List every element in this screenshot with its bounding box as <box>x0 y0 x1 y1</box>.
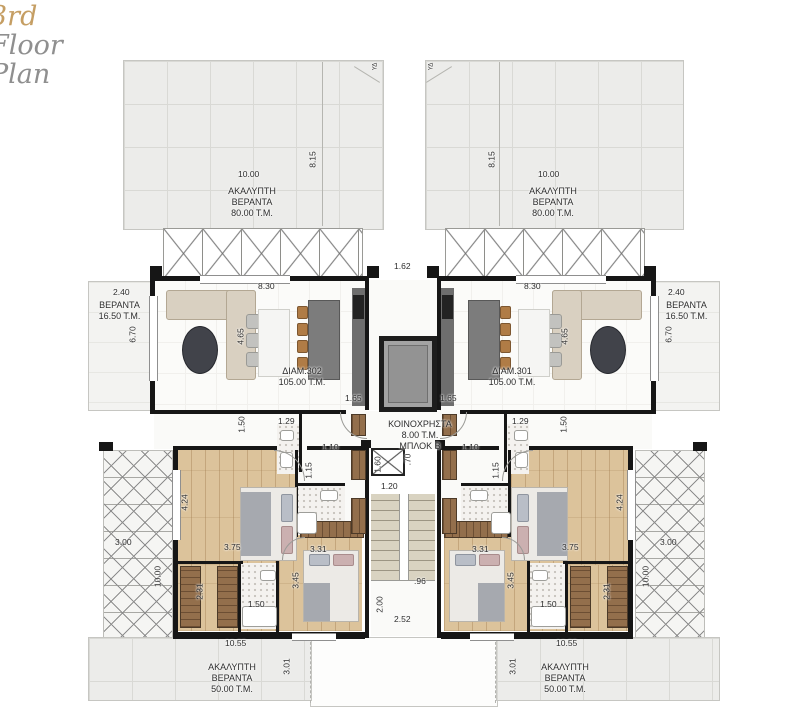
dim-sideveranda-width-right: 2.40 <box>668 288 685 297</box>
dim-entry-right: 1.50 <box>560 410 569 440</box>
bar-stool <box>297 323 308 336</box>
dim-corridor-left: 1.10 <box>322 443 339 452</box>
wall-segment <box>365 276 369 410</box>
dim-top-height-left: 8.15 <box>309 145 318 175</box>
blanket <box>241 492 271 556</box>
storage-cabinet <box>442 450 457 480</box>
wall-segment <box>150 410 346 414</box>
drain-mark-left: ΥΔ <box>371 63 380 71</box>
pergola-veranda-left <box>103 450 173 640</box>
wall-segment <box>173 632 365 639</box>
blanket <box>304 583 330 621</box>
label-line: 16.50 Τ.Μ. <box>655 311 718 322</box>
title-floor-number: 3rd <box>0 2 63 31</box>
bar-stool <box>297 340 308 353</box>
pillow <box>479 554 500 566</box>
label-line: ΒΕΡΑΝΤΑ <box>493 197 613 208</box>
dim-hall-right: 1.29 <box>512 417 529 426</box>
dim-living-depth-right: 4.65 <box>561 322 570 352</box>
label-line: 105.00 Τ.Μ. <box>252 377 352 388</box>
label-line: 105.00 Τ.Μ. <box>462 377 562 388</box>
dim-stair-width: 1.20 <box>381 482 398 491</box>
sliding-door-left <box>200 275 290 284</box>
dim-landing-total: 2.52 <box>394 615 411 624</box>
wardrobe-closet-left <box>217 566 238 628</box>
wall-segment <box>563 561 633 564</box>
boundary-dashed-right <box>495 637 497 703</box>
coffee-table-right <box>590 326 626 374</box>
dim-bath2-left: 1.50 <box>248 600 265 609</box>
label-line: ΑΚΑΛΥΠΤΗ <box>192 186 312 197</box>
bath1-sink-right <box>470 490 488 501</box>
label-line: ΑΚΑΛΥΠΤΗ <box>493 186 613 197</box>
label-line: 8.00 Τ.Μ. <box>368 430 472 441</box>
window-bed2-right <box>470 633 514 641</box>
dim-bed2-depth-left: 3.45 <box>292 566 301 596</box>
dim-sideveranda-width-left: 2.40 <box>113 288 130 297</box>
label-line: 16.50 Τ.Μ. <box>88 311 151 322</box>
wall-segment <box>437 446 441 638</box>
shower-right <box>491 512 511 534</box>
wardrobe-closet-right <box>570 566 591 628</box>
pillow <box>517 494 529 522</box>
wall-corner <box>693 442 707 451</box>
label-line: ΜΠΛΟΚ Β <box>368 441 472 452</box>
wc-sink-right <box>514 430 528 441</box>
bar-stool <box>500 323 511 336</box>
dim-master-width-left: 3.75 <box>224 543 241 552</box>
label-line: ΒΕΡΑΝΤΑ <box>505 673 625 684</box>
boundary-dashed-left <box>310 637 312 703</box>
bed-2-right <box>449 550 505 622</box>
side-veranda-label-right: ΒΕΡΑΝΤΑ 16.50 Τ.Μ. <box>655 300 718 322</box>
dim-entry-left: 1.50 <box>238 410 247 440</box>
drain-mark-right: ΥΔ <box>427 63 436 71</box>
dim-bed2-width-left: 3.31 <box>310 545 327 554</box>
label-line: 50.00 Τ.Μ. <box>172 684 292 695</box>
wc-sink-left <box>280 430 294 441</box>
dim-closet-right: 2.31 <box>603 577 612 607</box>
dim-top-width-left: 10.00 <box>238 170 259 179</box>
wall-segment <box>295 483 345 486</box>
dim-side-height-right: 10.00 <box>642 562 651 592</box>
pillow <box>333 554 354 566</box>
wall-segment <box>173 446 277 450</box>
wall-segment <box>529 446 633 450</box>
dim-line-left <box>322 62 323 226</box>
dim-hall-left: 1.29 <box>278 417 295 426</box>
dim-core-gap: 1.62 <box>394 262 411 271</box>
wall-segment <box>460 410 656 414</box>
label-line: ΑΚΑΛΥΠΤΗ <box>505 662 625 673</box>
dim-living-depth-left: 4.65 <box>237 322 246 352</box>
label-line: 80.00 Τ.Μ. <box>493 208 613 219</box>
dim-kitchen-left: 1.65 <box>345 394 362 403</box>
window-bed2-left <box>292 633 336 641</box>
dim-master-depth-left: 4.24 <box>181 488 190 518</box>
bath2-sink-right <box>532 570 548 581</box>
common-area-label: ΚΟΙΝΟΧΡΗΣΤΑ 8.00 Τ.Μ. ΜΠΛΟΚ Β <box>368 419 472 452</box>
top-veranda-label-right: ΑΚΑΛΥΠΤΗ ΒΕΡΑΝΤΑ 80.00 Τ.Μ. <box>493 186 613 219</box>
coffee-table-left <box>182 326 218 374</box>
wall-corner <box>644 266 656 278</box>
wall-corner <box>150 266 162 278</box>
kitchen-sink-left <box>353 295 364 319</box>
bath1-sink-left <box>320 490 338 501</box>
side-veranda-label-left: ΒΕΡΑΝΤΑ 16.50 Τ.Μ. <box>88 300 151 322</box>
dim-bed2-depth-right: 3.45 <box>507 566 516 596</box>
shower-left <box>297 512 317 534</box>
label-line: ΚΟΙΝΟΧΡΗΣΤΑ <box>368 419 472 430</box>
dim-bed2-width-right: 3.31 <box>472 545 489 554</box>
label-line: ΔΙΑΜ.302 <box>252 366 352 377</box>
bath2-sink-left <box>260 570 276 581</box>
wall-corner <box>99 442 113 451</box>
label-line: ΒΕΡΑΝΤΑ <box>172 673 292 684</box>
dim-top-width-right: 10.00 <box>538 170 559 179</box>
bar-stool <box>500 306 511 319</box>
dim-living-width-left: 8.30 <box>258 282 275 291</box>
dim-sideterrace-right: 3.00 <box>660 538 677 547</box>
staircase-divider <box>399 494 409 580</box>
label-line: ΒΕΡΑΝΤΑ <box>655 300 718 311</box>
storage-cabinet <box>442 498 457 534</box>
wall-segment <box>238 563 241 632</box>
storage-cabinet <box>351 450 366 480</box>
dim-master-depth-right: 4.24 <box>616 488 625 518</box>
elevator <box>379 336 437 412</box>
wall-corner <box>427 266 439 278</box>
bottom-veranda-label-left: ΑΚΑΛΥΠΤΗ ΒΕΡΑΝΤΑ 50.00 Τ.Μ. <box>172 662 292 695</box>
bottom-veranda-label-right: ΑΚΑΛΥΠΤΗ ΒΕΡΑΝΤΑ 50.00 Τ.Μ. <box>505 662 625 695</box>
wall-corner <box>367 266 379 278</box>
elevator-cab <box>388 345 428 403</box>
wall-segment <box>461 483 511 486</box>
floor-plan-canvas: 3rd Floor Plan ΥΔ ΥΔ <box>0 0 785 724</box>
dim-shaft-height: 1.60 <box>374 450 383 480</box>
dim-bottom-width-left: 10.55 <box>225 639 246 648</box>
title-floor-word: Floor <box>0 31 63 60</box>
label-line: ΔΙΑΜ.301 <box>462 366 562 377</box>
bathtub-left <box>242 606 277 627</box>
bed-2-left <box>303 550 359 622</box>
wall-segment <box>173 561 243 564</box>
dim-bath2-right: 1.50 <box>540 600 557 609</box>
dim-living-width-right: 8.30 <box>524 282 541 291</box>
dim-bottom-width-right: 10.55 <box>556 639 577 648</box>
bar-stool <box>297 306 308 319</box>
apartment-label-301: ΔΙΑΜ.301 105.00 Τ.Μ. <box>462 366 562 388</box>
pergola-strip-left <box>163 228 363 279</box>
label-line: ΑΚΑΛΥΠΤΗ <box>172 662 292 673</box>
page-title: 3rd Floor Plan <box>0 2 63 89</box>
window-bedroom-right <box>627 470 636 540</box>
bathtub-right <box>531 606 566 627</box>
bar-stool <box>500 340 511 353</box>
dim-corridor2-left: 1.15 <box>305 456 314 486</box>
dim-master-width-right: 3.75 <box>562 543 579 552</box>
blanket <box>478 583 504 621</box>
label-line: 50.00 Τ.Μ. <box>505 684 625 695</box>
dim-side-height-left: 10.00 <box>154 562 163 592</box>
dim-sideterrace-left: 3.00 <box>115 538 132 547</box>
dim-sideveranda-height-right: 6.70 <box>665 320 674 350</box>
kitchen-sink-right <box>442 295 453 319</box>
pergola-strip-right <box>445 228 645 279</box>
pillow <box>309 554 330 566</box>
storage-cabinet <box>351 498 366 534</box>
dining-chair <box>548 352 562 367</box>
label-line: ΒΕΡΑΝΤΑ <box>192 197 312 208</box>
dim-corridor2-right: 1.15 <box>492 456 501 486</box>
dim-closet-left: 2.31 <box>196 577 205 607</box>
label-line: ΒΕΡΑΝΤΑ <box>88 300 151 311</box>
pillow <box>455 554 476 566</box>
dim-sideveranda-height-left: 6.70 <box>129 320 138 350</box>
label-line: 80.00 Τ.Μ. <box>192 208 312 219</box>
dim-landing-height: 2.00 <box>376 590 385 620</box>
bottom-center-terrace <box>310 637 498 707</box>
top-veranda-label-left: ΑΚΑΛΥΠΤΗ ΒΕΡΑΝΤΑ 80.00 Τ.Μ. <box>192 186 312 219</box>
pillow <box>281 494 293 522</box>
dim-landing-width: .96 <box>414 577 426 586</box>
apartment-label-302: ΔΙΑΜ.302 105.00 Τ.Μ. <box>252 366 352 388</box>
dim-top-height-right: 8.15 <box>488 145 497 175</box>
dim-kitchen-right: 1.65 <box>440 394 457 403</box>
title-plan-word: Plan <box>0 60 63 89</box>
